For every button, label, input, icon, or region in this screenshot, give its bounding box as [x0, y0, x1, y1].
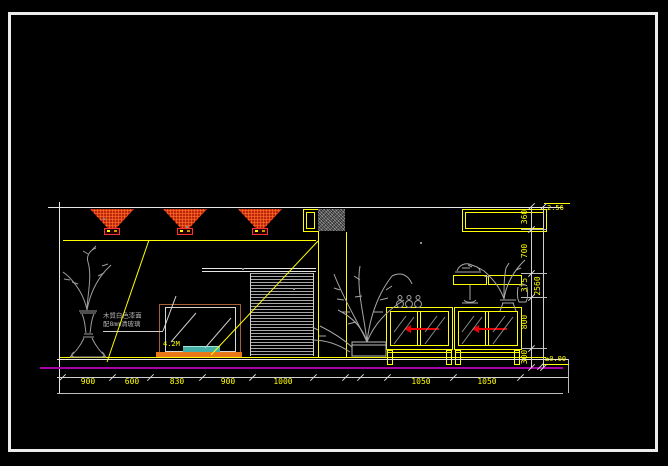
line-art-overlay	[0, 0, 668, 466]
left-plant-icon	[63, 246, 111, 357]
cad-elevation-viewport: 4.2M 木質白色漆面 配8mm清玻璃 900 600 830 900 1000…	[0, 0, 668, 466]
palm-plant-icon	[312, 266, 412, 356]
feature-wall-diagonals	[107, 240, 318, 362]
shelf-decor-icon	[455, 264, 481, 303]
note-leader-line	[163, 296, 176, 331]
shelf-plant-icon	[479, 260, 528, 311]
cabinet-glass-reflections	[394, 316, 513, 344]
vase-trio-icon	[397, 296, 422, 308]
